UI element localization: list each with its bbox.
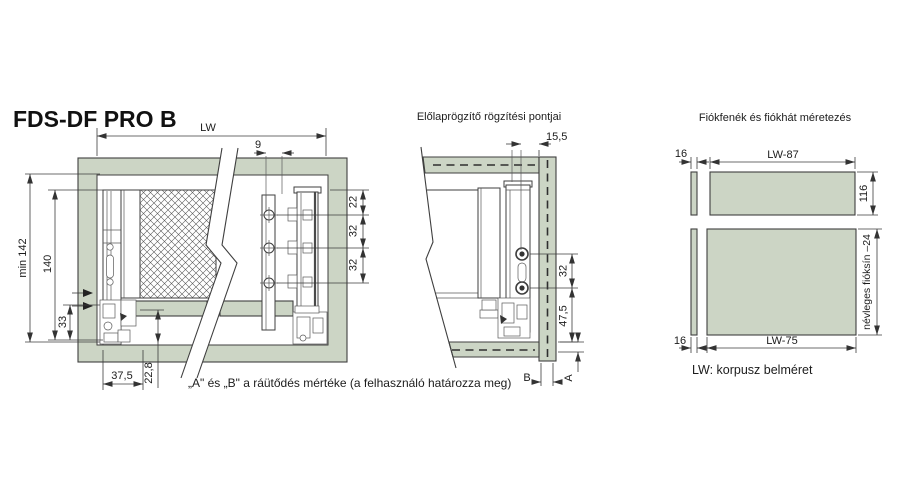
page-title: FDS-DF PRO B	[13, 106, 177, 132]
dim-label-a: A	[563, 374, 575, 382]
dim-label-37-5: 37,5	[111, 370, 132, 382]
dim-label-lw-75: LW-75	[766, 335, 797, 347]
technical-drawing-page: LW 9 22 32 32 min 142 140	[0, 0, 900, 500]
dim-label-32-upper: 32	[348, 225, 360, 237]
front-view-drawing: LW 9 22 32 32 min 142 140	[17, 122, 369, 390]
dim-label-16-top: 16	[675, 148, 687, 160]
dim-label-22: 22	[348, 196, 360, 208]
dim-label-32-lower: 32	[348, 259, 360, 271]
dim-label-15-5: 15,5	[546, 131, 567, 143]
drawer-bottom-left	[133, 301, 207, 316]
drawer-back-panel	[710, 172, 855, 215]
dim-label-b: B	[523, 372, 530, 384]
break-line	[421, 147, 456, 368]
dim-label-lw: LW	[200, 122, 216, 134]
side-section-title: Előlaprögzítő rögzítési pontjai	[417, 111, 561, 123]
front-panel-hatched	[140, 190, 216, 298]
dim-label-lw-87: LW-87	[767, 149, 798, 161]
dim-label-140: 140	[42, 255, 54, 273]
panel-sizing-drawing: 16 LW-87 116 16 LW-75 névleges fióksín –…	[674, 148, 882, 377]
adjust-slot	[518, 263, 526, 282]
drawer-bottom-panel	[707, 229, 856, 335]
diagram-canvas: LW 9 22 32 32 min 142 140	[0, 0, 900, 500]
back-panel-edge	[691, 172, 697, 215]
right-latch-mechanism	[293, 306, 327, 344]
adjust-slot	[107, 255, 114, 278]
dim-label-min142: min 142	[17, 238, 29, 277]
dim-label-47-5: 47,5	[558, 305, 570, 326]
drawer-bottom-right	[220, 301, 293, 316]
dim-label-22-8: 22,8	[143, 362, 155, 383]
side-section-drawing: 15,5 32 47,5 A B	[421, 131, 584, 386]
dim-label-rail-length: névleges fióksín –24	[861, 234, 873, 330]
lw-legend: LW: korpusz belméret	[692, 363, 813, 377]
overlay-note: „A" és „B" a ráütődés mértéke (a felhasz…	[188, 376, 511, 390]
dim-label-116: 116	[858, 185, 870, 203]
dim-label-33: 33	[57, 316, 69, 328]
dim-label-32: 32	[558, 265, 570, 277]
panel-sizing-title: Fiókfenék és fiókhát méretezés	[699, 112, 852, 124]
dim-label-9: 9	[255, 139, 261, 151]
dim-label-16-bottom: 16	[674, 335, 686, 347]
drawer-back-edge	[260, 195, 278, 330]
bottom-panel-edge	[691, 229, 697, 335]
